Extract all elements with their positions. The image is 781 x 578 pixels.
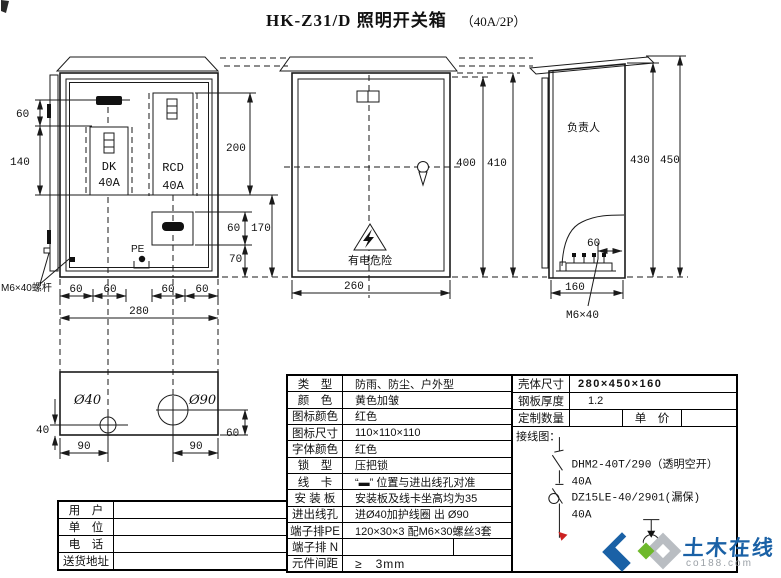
- watermark-domain: co188.com: [686, 558, 753, 569]
- dim-280: 280: [129, 306, 149, 318]
- dim-140: 140: [10, 157, 30, 169]
- order-table: 用 户 单 位 电 话 送货地址: [57, 500, 286, 571]
- spec-value: 压把锁: [343, 458, 511, 473]
- spec-label: 字体颜色: [288, 441, 343, 456]
- breaker1-model: DHM2-40T/290（透明空开）: [572, 456, 718, 471]
- order-value: [114, 502, 286, 518]
- dim-170: 170: [251, 223, 271, 235]
- spec-row-terminal-n: 端子排 N: [288, 539, 511, 555]
- dim-450: 450: [660, 155, 680, 167]
- danger-label: 有电危险: [348, 253, 392, 267]
- wiring-title: 接线图：: [516, 429, 560, 443]
- breaker-rcd-amp: 40A: [162, 179, 184, 193]
- order-row-user: 用 户: [59, 502, 286, 519]
- order-label: 送货地址: [59, 553, 114, 569]
- dim-410: 410: [487, 158, 507, 170]
- spec-label: 图标颜色: [288, 409, 343, 424]
- breaker-dk-amp: 40A: [98, 176, 120, 190]
- spec-row-mount-plate: 安 装 板 安装板及线卡坐高均为35: [288, 490, 511, 506]
- bottom-view: Ø40 Ø90 40 60 90 90: [36, 372, 248, 459]
- spec-row-icon-color: 图标颜色 红色: [288, 409, 511, 425]
- quantity-price-row: 定制数量 单 价: [513, 410, 736, 427]
- spec-value: 120×30×3 配M6×30螺丝3套: [343, 523, 511, 538]
- quantity-label: 定制数量: [513, 410, 570, 426]
- bolt-callout: M6×40螺杆: [1, 282, 52, 294]
- breaker2-model: DZ15LE-40/2901(漏保): [572, 490, 701, 505]
- spec-row-font-color: 字体颜色 红色: [288, 441, 511, 457]
- spec-label: 锁 型: [288, 458, 343, 473]
- spec-row-terminal-pe: 端子排PE 120×30×3 配M6×30螺丝3套: [288, 523, 511, 539]
- shell-size-value: 280×450×160: [570, 376, 736, 392]
- spec-row-spacing: 元件间距 ≥ 3mm: [288, 556, 511, 571]
- spec-row-wire-holes: 进出线孔 进Ø40加护线圈 出 Ø90: [288, 507, 511, 523]
- center-view: 有电危险 260 400 410: [280, 57, 520, 299]
- dim-60-bv: 60: [226, 428, 239, 440]
- spec-value: [343, 539, 511, 554]
- order-value: [114, 536, 286, 552]
- spec-label: 元件间距: [288, 556, 343, 571]
- steel-thickness-label: 钢板厚度: [513, 393, 570, 409]
- hole-40-label: Ø40: [73, 393, 101, 408]
- spec-value: 安装板及线卡坐高均为35: [343, 490, 511, 505]
- shell-size-label: 壳体尺寸: [513, 376, 570, 392]
- spec-label: 图标尺寸: [288, 425, 343, 440]
- spec-value: 红色: [343, 409, 511, 424]
- pe-label: PE: [131, 244, 145, 255]
- front-view: DK 40A RCD 40A PE M6×40螺杆 60 140 200 60 …: [1, 57, 278, 318]
- corner-mark: [1, 0, 9, 13]
- spec-value: “▬” 位置与进出线孔对准: [343, 474, 511, 489]
- order-label: 电 话: [59, 536, 114, 552]
- dim-b60-4: 60: [195, 284, 208, 296]
- spec-label: 进出线孔: [288, 507, 343, 522]
- breaker2-symbol: [549, 488, 568, 540]
- dim-60-left: 60: [16, 109, 29, 121]
- hole-90-label: Ø90: [188, 393, 216, 408]
- terminal-n-value: [343, 539, 453, 554]
- dim-60-side: 60: [587, 238, 600, 250]
- unit-price-label: 单 价: [623, 410, 682, 426]
- steel-thickness-value: 1.2: [570, 393, 736, 409]
- order-row-phone: 电 话: [59, 536, 286, 553]
- spec-row-color: 颜 色 黄色加皱: [288, 392, 511, 408]
- spec-label: 端子排PE: [288, 523, 343, 538]
- spec-label: 安 装 板: [288, 490, 343, 505]
- watermark-logo: 土木在线 co188.com: [598, 529, 781, 578]
- terminal-n-extra-cell: [453, 539, 511, 554]
- quantity-value-cell: [570, 410, 623, 426]
- dim-b60-1: 60: [69, 284, 82, 296]
- breaker-rcd-label: RCD: [162, 161, 184, 175]
- spec-table-left: 类 型 防雨、防尘、户外型 颜 色 黄色加皱 图标颜色 红色 图标尺寸 110×…: [288, 376, 513, 571]
- spec-value: 黄色加皱: [343, 392, 511, 407]
- dim-260: 260: [344, 281, 364, 293]
- spec-label: 端子排 N: [288, 539, 343, 554]
- spec-value: ≥ 3mm: [343, 556, 511, 571]
- dim-b60-3: 60: [161, 284, 174, 296]
- dim-400: 400: [456, 158, 476, 170]
- spec-row-type: 类 型 防雨、防尘、户外型: [288, 376, 511, 392]
- order-row-company: 单 位: [59, 519, 286, 536]
- dim-160: 160: [565, 282, 585, 294]
- dim-b60-2: 60: [103, 284, 116, 296]
- spec-value: 110×110×110: [343, 425, 511, 440]
- spec-label: 颜 色: [288, 392, 343, 407]
- dim-60-right: 60: [227, 223, 240, 235]
- breaker1-symbol: [552, 437, 563, 484]
- breaker-dk-label: DK: [102, 160, 117, 174]
- dim-70: 70: [229, 254, 242, 266]
- side-view: 负责人 60 160 M6×40 430 450: [530, 56, 686, 322]
- dim-430: 430: [630, 155, 650, 167]
- spec-value: 进Ø40加护线圈 出 Ø90: [343, 507, 511, 522]
- spec-value: 防雨、防尘、户外型: [343, 376, 511, 391]
- dim-90-right: 90: [189, 441, 202, 453]
- spec-row-icon-size: 图标尺寸 110×110×110: [288, 425, 511, 441]
- breaker2-amp: 40A: [572, 510, 592, 522]
- spec-label: 类 型: [288, 376, 343, 391]
- steel-thickness-row: 钢板厚度 1.2: [513, 393, 736, 410]
- spec-label: 线 卡: [288, 474, 343, 489]
- breaker1-amp: 40A: [572, 476, 592, 488]
- dim-40: 40: [36, 425, 49, 437]
- spec-row-lock: 锁 型 压把锁: [288, 458, 511, 474]
- bolt-callout-side: M6×40: [566, 310, 599, 322]
- order-value: [114, 553, 286, 569]
- drawing-sheet: HK-Z31/D 照明开关箱 （40A/2P）: [0, 0, 781, 578]
- person-label: 负责人: [567, 120, 600, 134]
- shell-size-row: 壳体尺寸 280×450×160: [513, 376, 736, 393]
- unit-price-value-cell: [682, 410, 736, 426]
- order-label: 单 位: [59, 519, 114, 535]
- dim-200: 200: [226, 143, 246, 155]
- order-row-address: 送货地址: [59, 553, 286, 569]
- order-label: 用 户: [59, 502, 114, 518]
- dim-90-left: 90: [77, 441, 90, 453]
- spec-row-clip: 线 卡 “▬” 位置与进出线孔对准: [288, 474, 511, 490]
- order-value: [114, 519, 286, 535]
- spec-value: 红色: [343, 441, 511, 456]
